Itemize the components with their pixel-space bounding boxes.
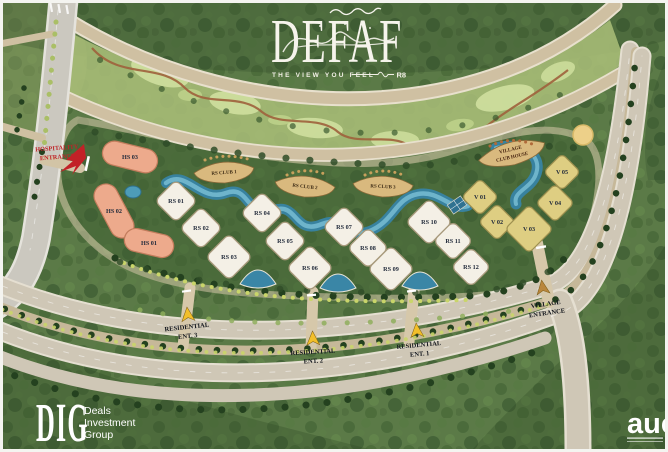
tagline: THE VIEW YOU FEEL	[272, 72, 375, 79]
building-label: RS 01	[168, 198, 184, 205]
building-label: RS 08	[360, 245, 376, 252]
r8-badge: R8	[397, 71, 407, 80]
building-label: RS 07	[336, 224, 352, 231]
building-label: RS 05	[277, 238, 293, 245]
dig-line-2: Investment	[84, 417, 135, 429]
building-label: RS 04	[254, 210, 270, 217]
building-label: RS 09	[383, 266, 399, 273]
aue-logo: aue	[627, 408, 668, 442]
dig-line-3: Group	[84, 429, 113, 441]
building-label: V 05	[556, 169, 568, 176]
building-label: HS 01	[141, 240, 157, 247]
building-label: HS 02	[106, 208, 122, 215]
building-label: RS 06	[302, 265, 318, 272]
aue-wordmark: aue	[627, 408, 668, 440]
building-label: HS 03	[122, 154, 138, 161]
building-label: RS 11	[445, 238, 460, 245]
site-plan-image: RS CLUB 1RS CLUB 2RS CLUB 3 HS 03HS 02HS…	[0, 0, 668, 452]
building-label: RS 12	[463, 264, 479, 271]
landmark-circle	[573, 125, 593, 145]
building-label: RS 10	[421, 219, 437, 226]
dig-wordmark: DIG	[36, 392, 89, 452]
building-label: V 01	[474, 194, 486, 201]
building-label: RS 02	[193, 225, 209, 232]
residential-entrance-2-line2: ENT. 2	[304, 357, 324, 365]
building-label: V 03	[523, 226, 535, 233]
building-label: V 02	[491, 219, 503, 226]
building-label: RS 03	[221, 254, 237, 261]
dig-line-1: Deals	[84, 405, 111, 417]
master-plan-svg: RS CLUB 1RS CLUB 2RS CLUB 3 HS 03HS 02HS…	[0, 0, 668, 452]
hs-pool	[125, 186, 141, 198]
defaf-logo: DEFAF THE VIEW YOU FEEL R8	[271, 6, 406, 79]
building-label: V 04	[549, 200, 561, 207]
